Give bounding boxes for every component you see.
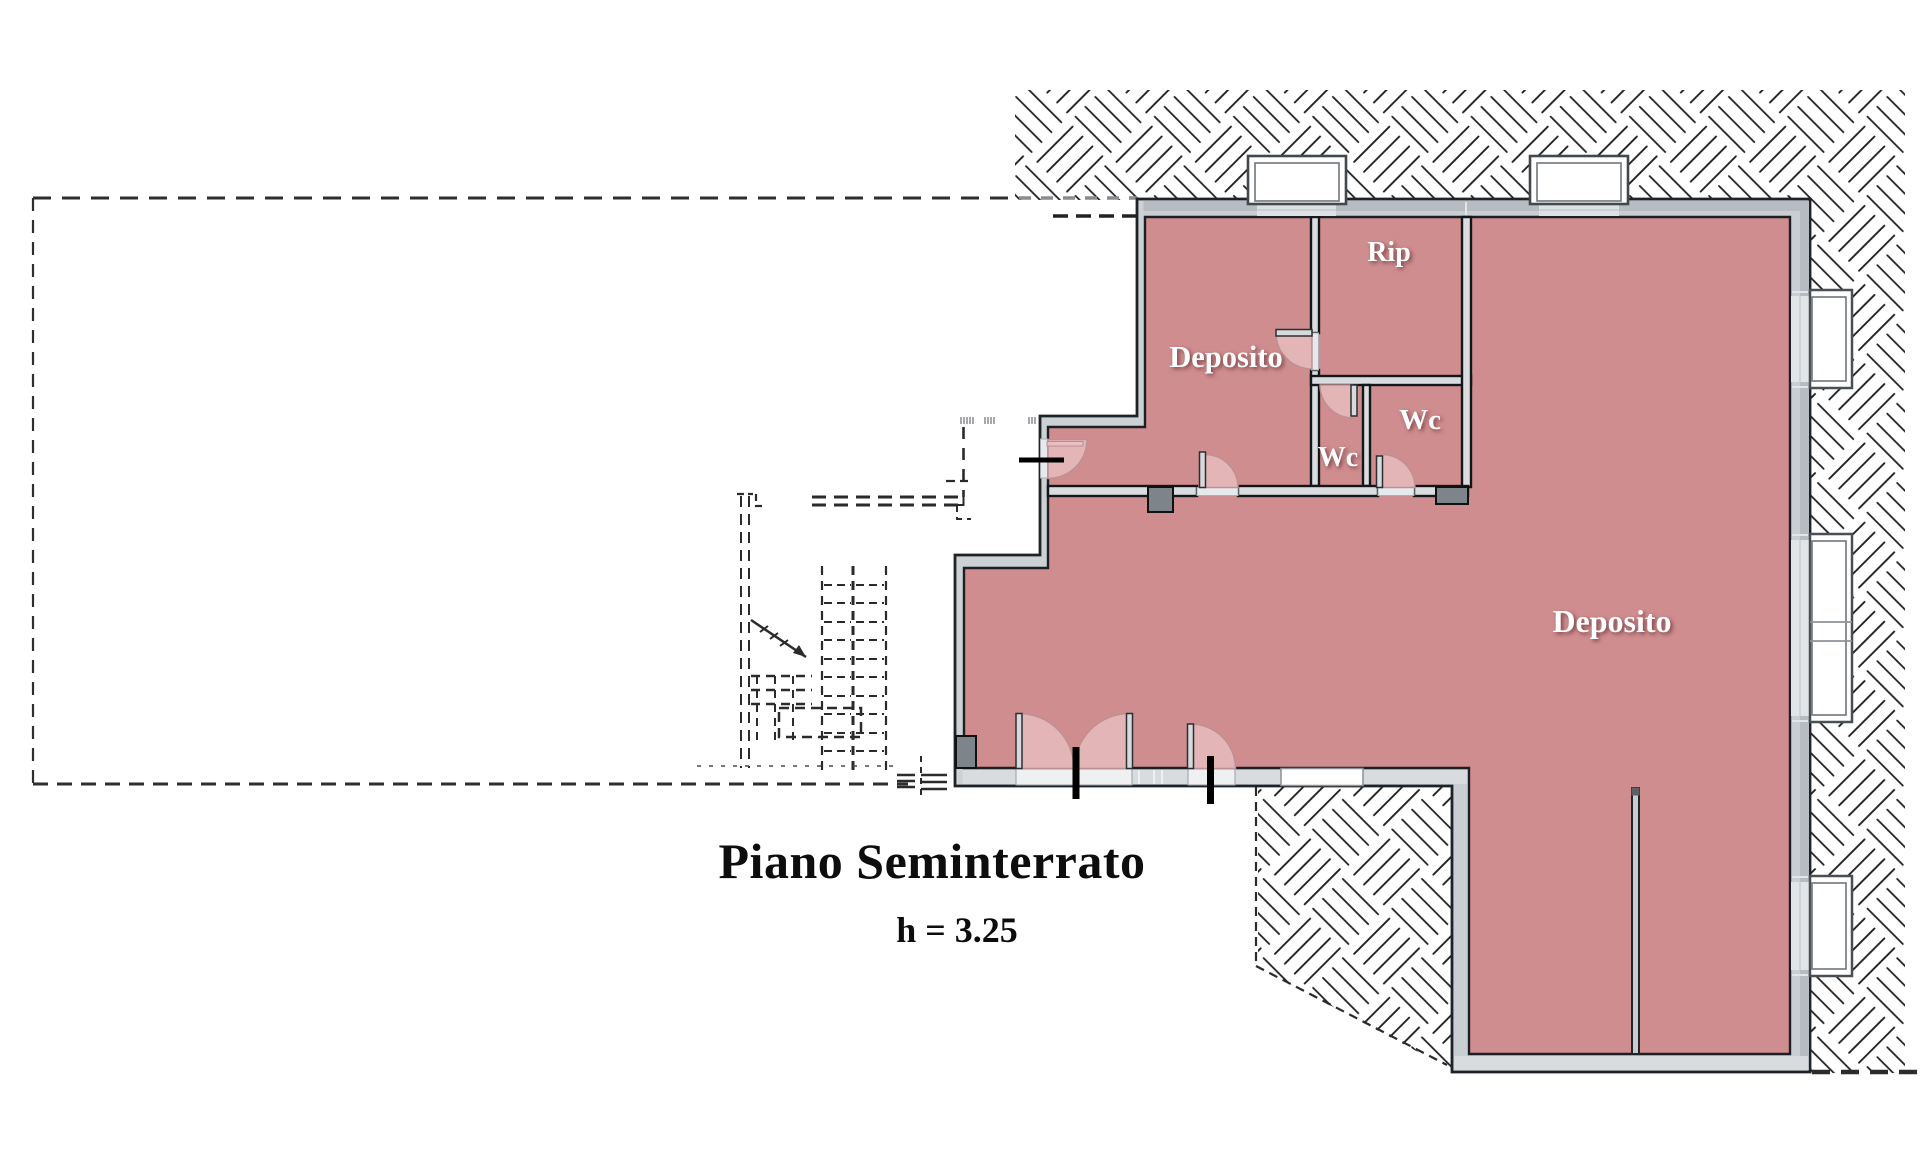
svg-text:Wc: Wc — [1318, 442, 1358, 473]
svg-text:Rip: Rip — [1367, 237, 1411, 268]
svg-text:Deposito: Deposito — [1552, 603, 1671, 639]
svg-text:h = 3.25: h = 3.25 — [896, 910, 1018, 950]
svg-text:Piano Seminterrato: Piano Seminterrato — [719, 833, 1146, 889]
svg-text:Deposito: Deposito — [1169, 340, 1283, 374]
svg-text:Wc: Wc — [1399, 404, 1441, 436]
